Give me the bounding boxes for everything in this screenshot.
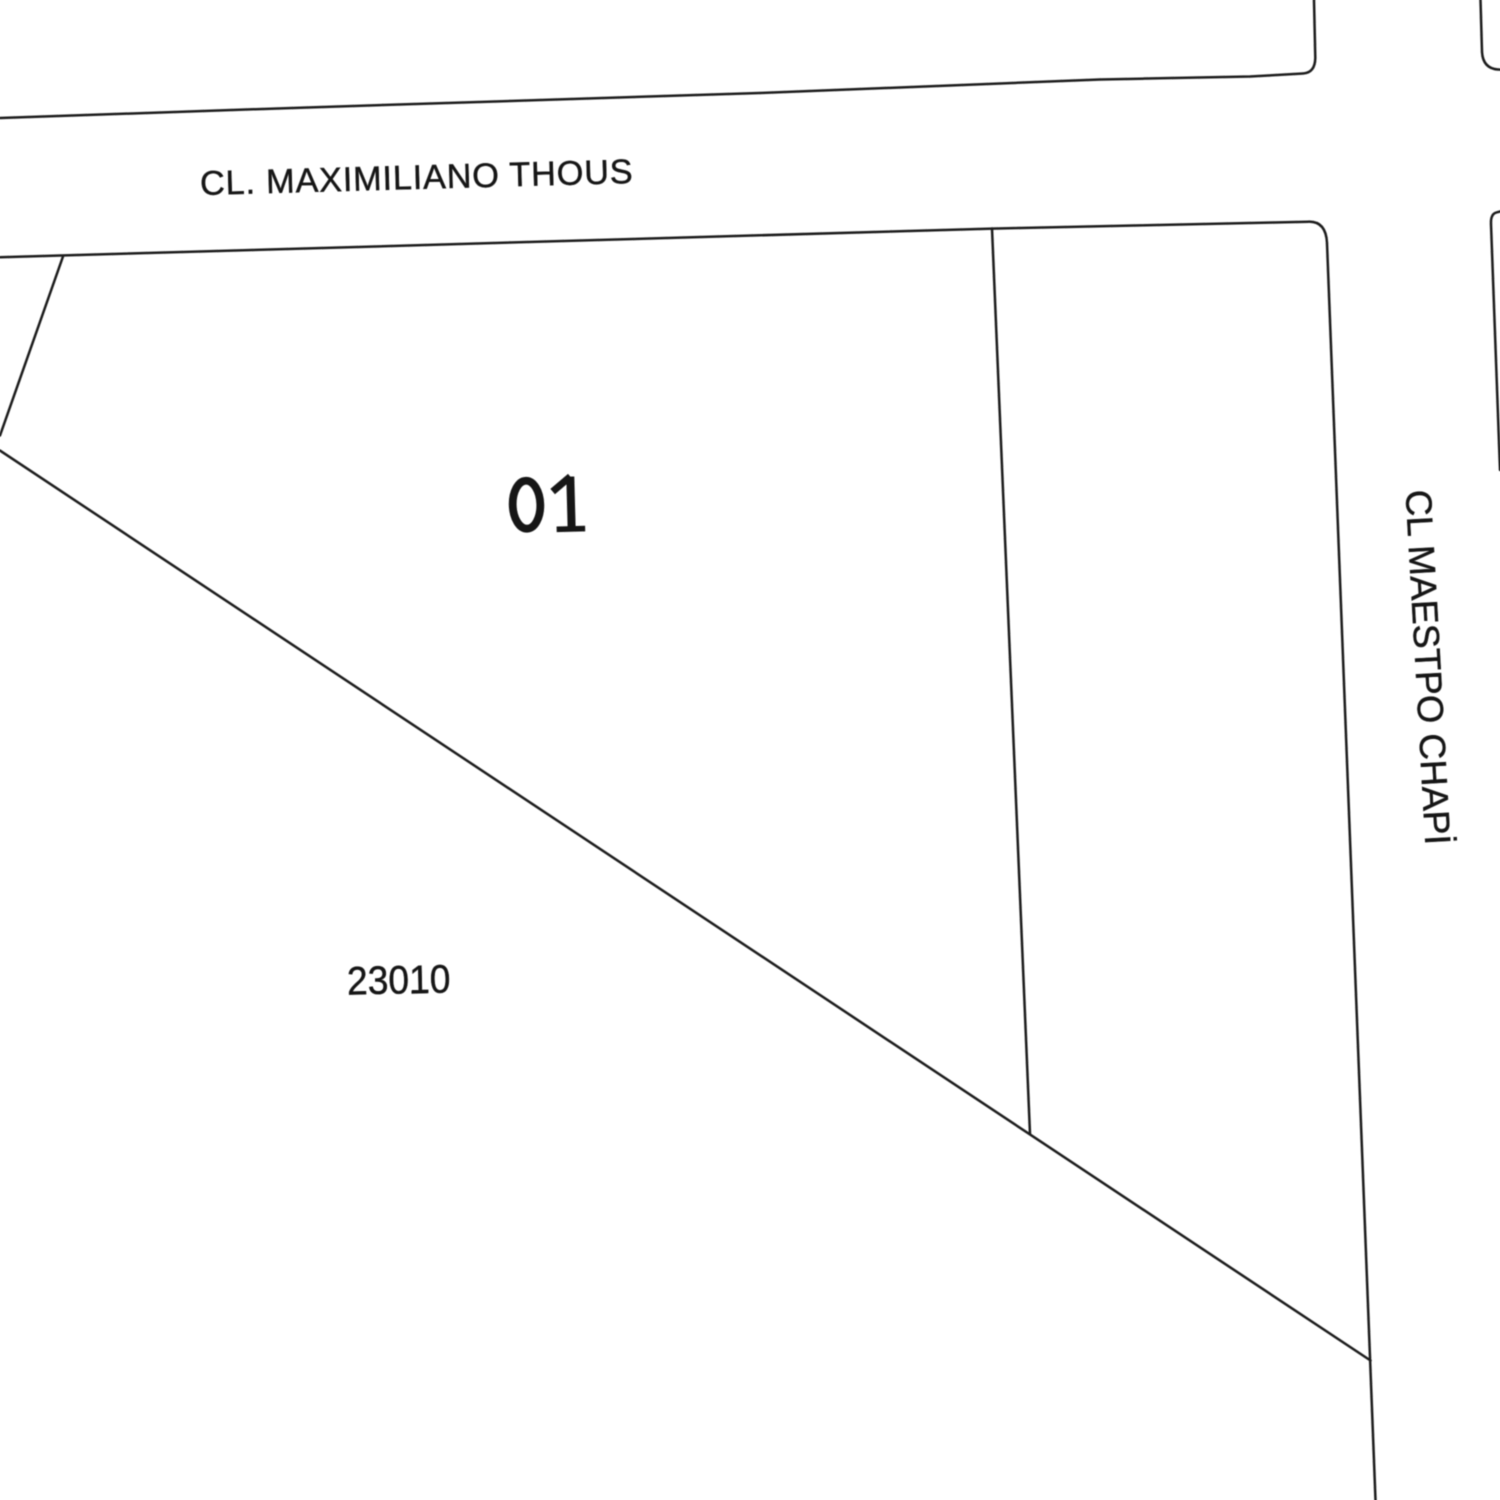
svg-text:23010: 23010: [347, 957, 451, 1004]
